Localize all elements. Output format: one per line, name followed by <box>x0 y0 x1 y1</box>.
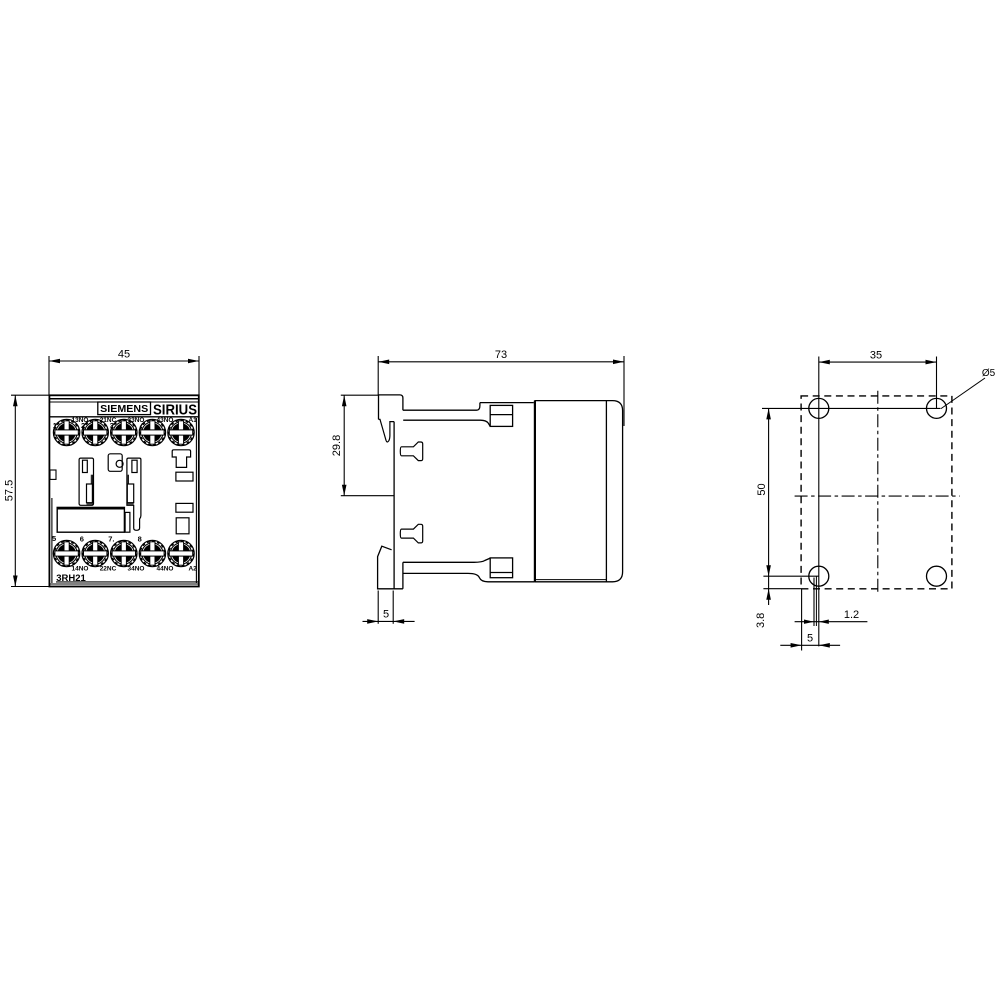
svg-text:44NO: 44NO <box>157 565 174 572</box>
svg-text:1.2: 1.2 <box>844 609 859 621</box>
svg-text:14NO: 14NO <box>72 565 89 572</box>
svg-text:5: 5 <box>807 633 813 645</box>
svg-text:Ø5: Ø5 <box>982 368 996 379</box>
svg-text:35: 35 <box>870 350 882 362</box>
svg-text:7.: 7. <box>108 535 114 544</box>
svg-text:22NC: 22NC <box>100 565 117 572</box>
svg-text:50: 50 <box>756 483 768 495</box>
svg-text:5: 5 <box>52 534 56 543</box>
svg-text:SIEMENS: SIEMENS <box>100 403 148 415</box>
svg-text:5: 5 <box>383 608 389 620</box>
svg-text:57.5: 57.5 <box>4 480 16 501</box>
svg-text:73: 73 <box>495 349 507 361</box>
svg-text:29.8: 29.8 <box>331 435 343 456</box>
svg-text:3.8: 3.8 <box>755 613 767 628</box>
svg-text:8: 8 <box>138 535 142 544</box>
svg-text:45: 45 <box>118 349 130 361</box>
svg-text:6: 6 <box>80 535 84 544</box>
svg-text:A2: A2 <box>188 565 197 572</box>
svg-text:34NO: 34NO <box>128 565 145 572</box>
svg-text:3RH21: 3RH21 <box>56 573 86 584</box>
